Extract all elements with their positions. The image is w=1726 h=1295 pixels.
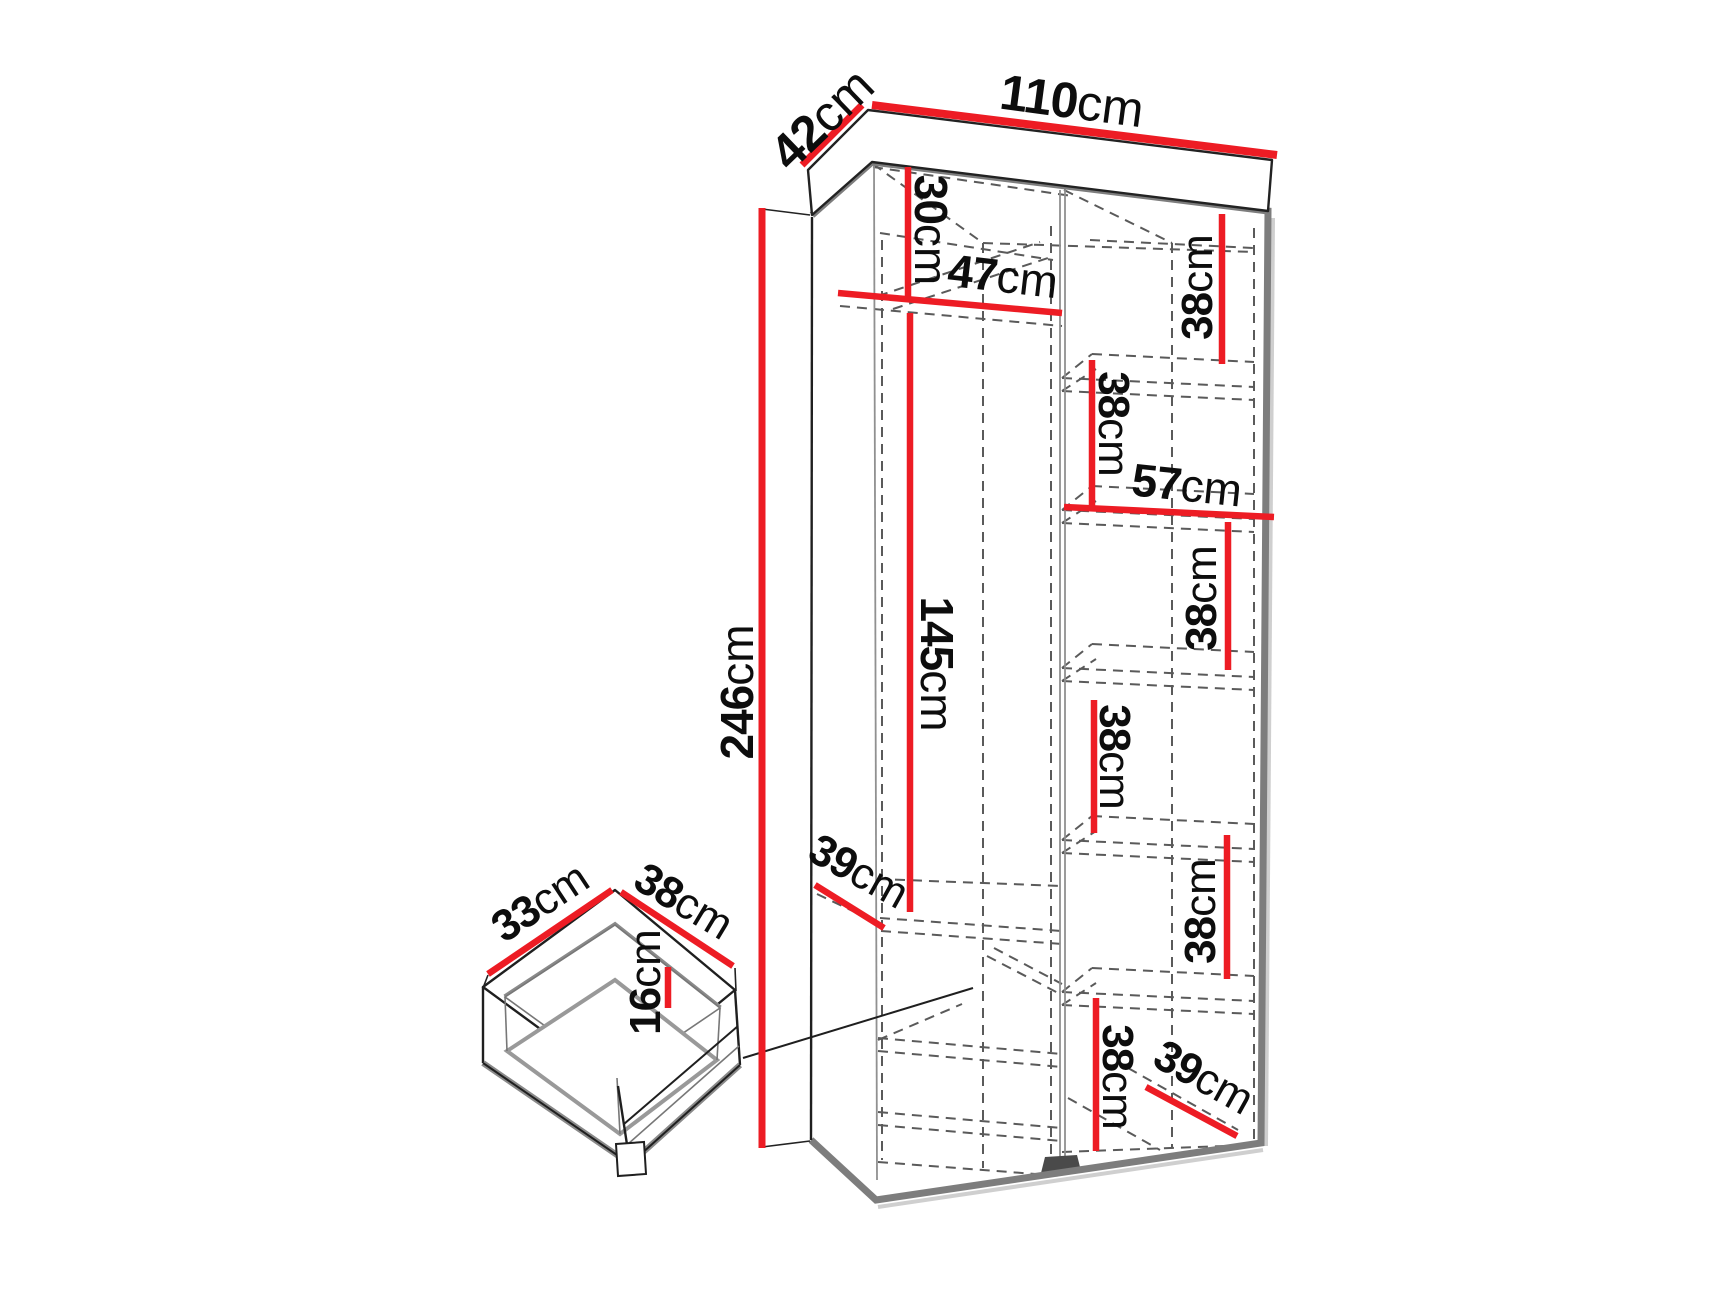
dim-label-hanging-height: 145cm xyxy=(911,596,963,731)
diagram-canvas: 110cm 42cm 246cm 30cm 47cm 145cm 57cm 38… xyxy=(0,0,1726,1295)
dashed-line xyxy=(881,931,1062,944)
dim-label-left-shelf-depth: 39cm xyxy=(801,824,917,918)
wardrobe-dimension-diagram: 110cm 42cm 246cm 30cm 47cm 145cm 57cm 38… xyxy=(0,0,1726,1295)
drawer-inner-wall-edge xyxy=(717,1008,720,1060)
dim-label-left-section-width: 47cm xyxy=(945,244,1061,308)
dashed-line xyxy=(878,1004,962,1040)
dashed-line xyxy=(1062,983,1096,1005)
extension-line xyxy=(762,1141,810,1147)
dim-label-drawer-height: 16cm xyxy=(621,929,670,1035)
dashed-line xyxy=(878,1051,1062,1067)
dim-label-height: 246cm xyxy=(711,624,763,759)
dashed-line xyxy=(1062,968,1092,992)
dashed-line xyxy=(1062,659,1096,681)
dim-label-shelf-5: 38cm xyxy=(1176,858,1225,964)
drawer-leader-line xyxy=(743,988,973,1058)
dashed-line xyxy=(878,1038,1062,1054)
dim-label-right-section-width: 57cm xyxy=(1129,453,1244,516)
dashed-line xyxy=(878,1125,1062,1141)
dashed-line xyxy=(1092,354,1254,362)
dashed-line xyxy=(987,956,1060,994)
dashed-line xyxy=(1062,831,1096,853)
left-front-edge xyxy=(811,217,812,1140)
dashed-line xyxy=(880,918,1062,931)
dim-label-shelf-4: 38cm xyxy=(1091,704,1140,810)
extension-line xyxy=(762,209,810,215)
dim-label-shelf-2: 38cm xyxy=(1090,371,1139,477)
drawer-foot xyxy=(616,1142,646,1176)
extension-line xyxy=(735,968,736,991)
dashed-line xyxy=(1062,354,1092,378)
dim-label-shelf-6: 38cm xyxy=(1094,1024,1143,1130)
dashed-line xyxy=(1062,644,1092,668)
dim-label-shelf-1: 38cm xyxy=(1173,234,1222,340)
dashed-line xyxy=(1062,681,1254,690)
left-interior-edge xyxy=(874,165,877,1180)
dashed-line xyxy=(1062,1005,1254,1014)
dashed-line xyxy=(878,1112,1062,1128)
dashed-line xyxy=(1062,992,1254,1001)
dim-label-shelf-3: 38cm xyxy=(1177,545,1226,651)
dashed-line xyxy=(1062,816,1092,840)
